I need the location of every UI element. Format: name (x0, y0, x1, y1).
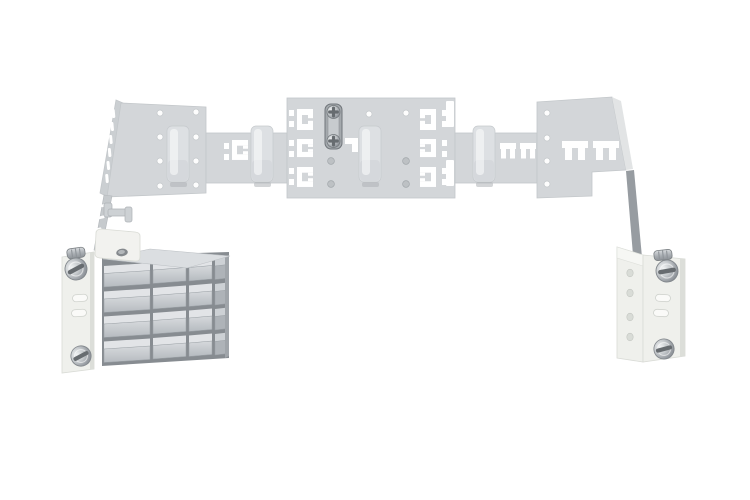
terminal-block (153, 311, 186, 335)
product-render-canvas (0, 0, 750, 500)
panel-hole (366, 111, 372, 117)
rail-clip (251, 126, 273, 187)
side-screw (66, 247, 85, 259)
terminal-block (153, 286, 186, 310)
terminal-block (189, 284, 212, 307)
panel-hole (544, 158, 550, 164)
clamp-screw (327, 106, 340, 119)
bracket-hole (627, 333, 633, 341)
left-bracket (61, 247, 95, 373)
side-screw (654, 249, 673, 261)
clamp-screw (327, 135, 340, 148)
bracket-assembly-render (0, 0, 750, 500)
angled-plate (95, 229, 140, 261)
terminal-block (104, 289, 150, 313)
panel-hole (544, 110, 550, 116)
panel-hole (403, 110, 409, 116)
left-panel (107, 103, 206, 197)
bracket-hole (627, 289, 633, 297)
panel-hole (193, 158, 199, 164)
panel-dimple (328, 181, 335, 188)
terminal-block (104, 314, 150, 338)
right-bracket-edge-shadow (680, 259, 685, 357)
cutout-bar (446, 160, 454, 186)
terminal-block (189, 334, 212, 357)
panel-hole (157, 183, 163, 189)
terminal-block-stack (102, 249, 230, 366)
rail-clip (473, 126, 495, 187)
grounding-clamp (325, 104, 342, 149)
panel-dimple (328, 158, 335, 165)
panel-hole (193, 182, 199, 188)
panel-hole (544, 181, 550, 187)
bracket-hole (627, 313, 633, 321)
terminal-block (104, 339, 150, 363)
panel-hole (193, 134, 199, 140)
panel-dimple (403, 181, 410, 188)
cable-clamp (104, 203, 132, 222)
stack-side-edge (225, 255, 229, 358)
bracket-slot (72, 294, 87, 302)
panel-hole (157, 158, 163, 164)
right-bracket (617, 247, 685, 362)
panel-hole (157, 110, 163, 116)
bracket-slot (653, 309, 668, 317)
rail-clip (167, 126, 189, 187)
bracket-slot (71, 309, 86, 317)
panel-hole (157, 134, 163, 140)
cutout-bar (446, 101, 454, 127)
rail-clip (359, 126, 381, 187)
terminal-block (104, 263, 150, 287)
panel-hole (544, 135, 550, 141)
mounting-plate (100, 97, 633, 198)
terminal-block (189, 309, 212, 332)
bracket-slot (655, 294, 670, 302)
bracket-hole (627, 269, 633, 277)
panel-dimple (403, 158, 410, 165)
panel-hole (193, 109, 199, 115)
terminal-block (153, 336, 186, 360)
